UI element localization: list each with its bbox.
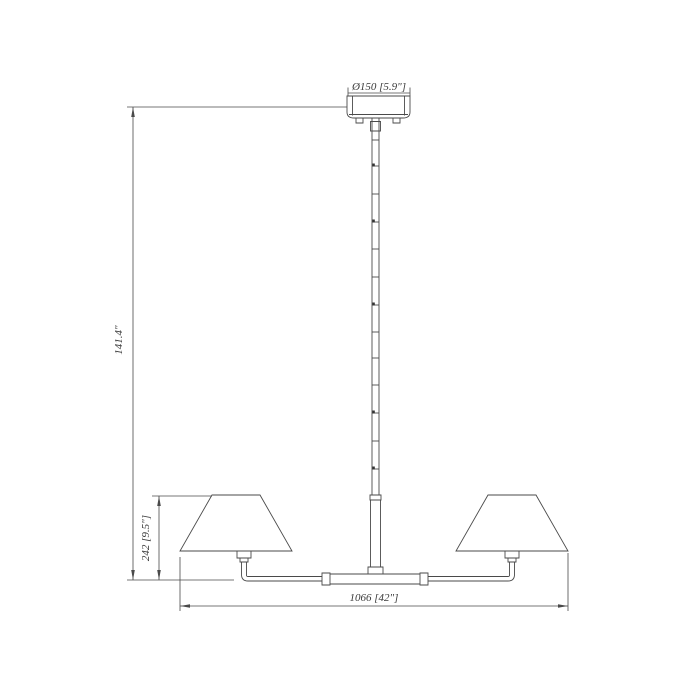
canopy-foot-right <box>393 118 400 123</box>
body-height-label: 242 [9.5"] <box>140 515 152 561</box>
fixture-outline <box>180 96 568 585</box>
canopy-foot-left <box>356 118 363 123</box>
rod-hub <box>368 567 383 574</box>
arm-assembly <box>237 551 519 585</box>
overall-height-label: 141.4" <box>113 325 125 355</box>
canopy <box>347 96 410 123</box>
rod-screws <box>372 164 374 470</box>
hanging-rod <box>368 118 383 574</box>
lamp-shade-left <box>180 495 292 551</box>
chandelier-dimension-drawing: Ø150 [5.9"] 141.4" 242 [9.5"] 1066 [42"] <box>0 0 700 700</box>
tube-collar-left <box>322 573 330 585</box>
socket-cup-left <box>237 551 251 562</box>
canopy-diameter-label: Ø150 [5.9"] <box>351 81 406 93</box>
arm-right <box>428 562 510 577</box>
arm-left <box>247 562 323 577</box>
tube-collar-right <box>420 573 428 585</box>
overall-width-label: 1066 [42"] <box>350 592 399 604</box>
technical-drawing-canvas: Ø150 [5.9"] 141.4" 242 [9.5"] 1066 [42"] <box>0 0 700 700</box>
socket-cup-right <box>505 551 519 562</box>
lamp-shade-right <box>456 495 568 551</box>
